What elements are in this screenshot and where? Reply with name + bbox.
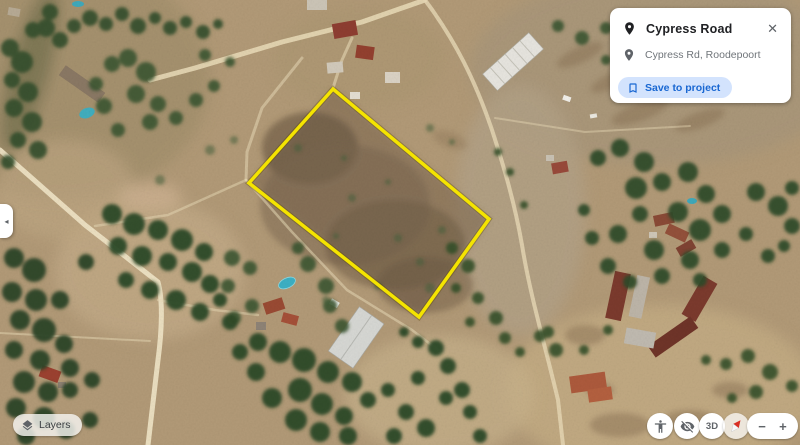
place-address: Cypress Rd, Roodepoort [645, 49, 761, 61]
address-pin-icon [622, 48, 636, 62]
save-to-project-button[interactable]: Save to project [618, 77, 732, 98]
place-pin-icon [622, 21, 637, 36]
zoom-out-button[interactable]: − [756, 420, 768, 433]
side-panel-toggle[interactable]: ◂ [0, 204, 13, 238]
layers-button[interactable]: Layers [13, 414, 82, 436]
zoom-control: − + [747, 413, 798, 439]
hide-photos-button[interactable] [674, 413, 700, 439]
compass-button[interactable] [723, 413, 749, 439]
visibility-off-icon [680, 419, 695, 434]
place-title: Cypress Road [646, 22, 732, 36]
save-to-project-label: Save to project [645, 82, 720, 94]
layers-icon [21, 419, 34, 432]
bookmark-icon [627, 82, 639, 94]
panel-collapse-icon: ◂ [4, 217, 8, 226]
pegman-button[interactable] [647, 413, 673, 439]
compass-needle-icon [726, 416, 746, 436]
3d-label: 3D [706, 421, 718, 432]
place-card: Cypress Road ✕ Cypress Rd, Roodepoort Sa… [610, 8, 791, 103]
3d-toggle-button[interactable]: 3D [699, 413, 725, 439]
pegman-icon [653, 419, 668, 434]
zoom-in-button[interactable]: + [777, 420, 789, 433]
close-icon[interactable]: ✕ [765, 20, 780, 37]
layers-label: Layers [39, 419, 71, 431]
